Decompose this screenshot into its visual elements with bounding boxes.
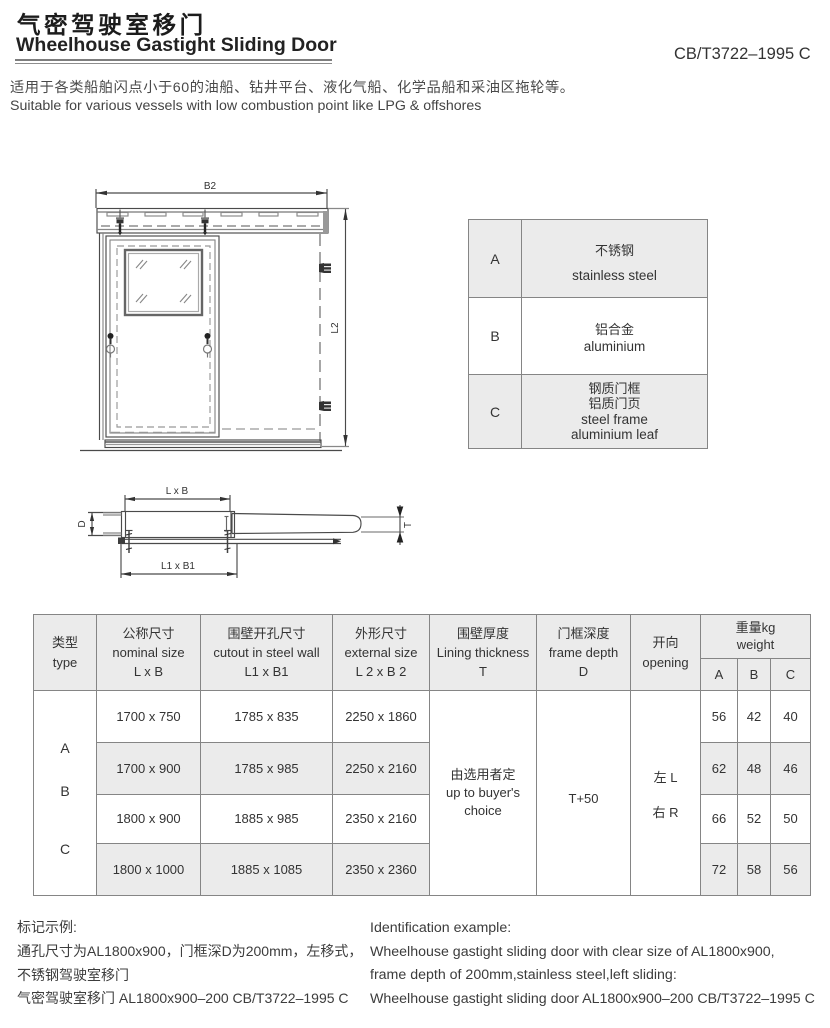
svg-text:T: T <box>403 522 414 528</box>
svg-text:L1 x B1: L1 x B1 <box>161 561 195 572</box>
svg-text:B2: B2 <box>204 181 217 192</box>
svg-text:D: D <box>77 520 88 527</box>
svg-text:L2: L2 <box>330 322 341 334</box>
svg-text:L x B: L x B <box>166 486 189 497</box>
